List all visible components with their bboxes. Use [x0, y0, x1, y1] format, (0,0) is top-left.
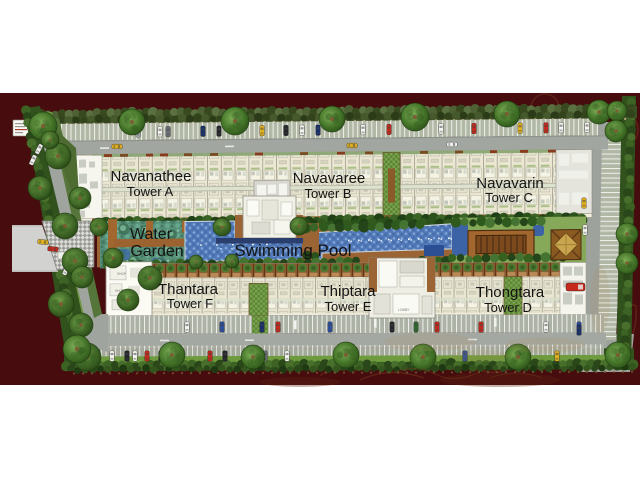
svg-text:LOBBY: LOBBY	[398, 308, 410, 312]
svg-text:Tower D: Tower D	[484, 300, 532, 315]
svg-text:Navanathee: Navanathee	[111, 168, 192, 185]
svg-text:Tower E: Tower E	[325, 299, 372, 314]
svg-text:Swimming Pool: Swimming Pool	[234, 241, 351, 260]
svg-text:Thiptara: Thiptara	[320, 283, 376, 300]
svg-text:Tower C: Tower C	[485, 190, 533, 205]
svg-text:Garden: Garden	[130, 243, 183, 260]
svg-text:Tower F: Tower F	[167, 296, 213, 311]
svg-text:Navavaree: Navavaree	[293, 170, 366, 187]
svg-text:Water: Water	[130, 226, 173, 243]
svg-text:Tower A: Tower A	[127, 184, 174, 199]
svg-text:Tower B: Tower B	[305, 186, 352, 201]
svg-text:SHOP: SHOP	[117, 272, 126, 276]
svg-text:Thongtara: Thongtara	[476, 284, 545, 301]
